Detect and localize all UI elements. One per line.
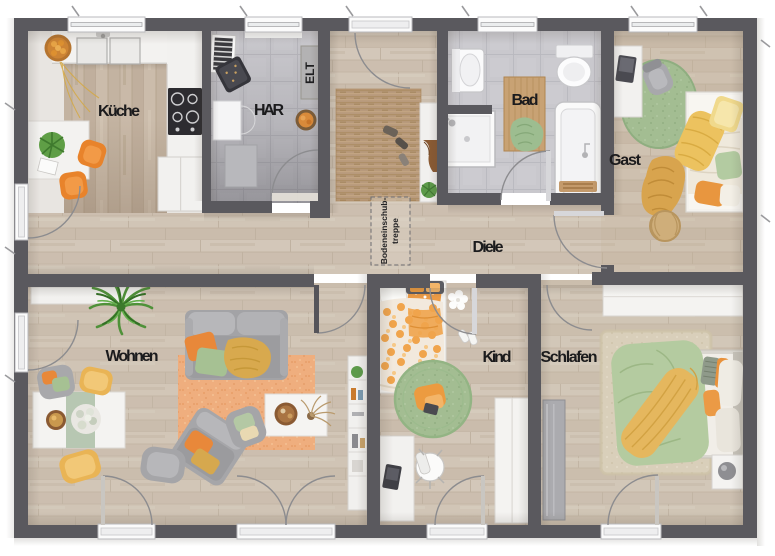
svg-text:Küche: Küche: [98, 103, 140, 120]
svg-text:Diele: Diele: [473, 239, 504, 256]
svg-text:Kind: Kind: [483, 349, 512, 366]
svg-text:HAR: HAR: [254, 102, 284, 119]
svg-text:Bad: Bad: [512, 92, 539, 109]
svg-text:Wohnen: Wohnen: [106, 348, 159, 365]
svg-text:Bodeneinschub-: Bodeneinschub-: [379, 198, 389, 265]
svg-text:Schlafen: Schlafen: [541, 349, 598, 366]
svg-text:Gast: Gast: [609, 152, 642, 169]
svg-text:treppe: treppe: [390, 218, 400, 244]
